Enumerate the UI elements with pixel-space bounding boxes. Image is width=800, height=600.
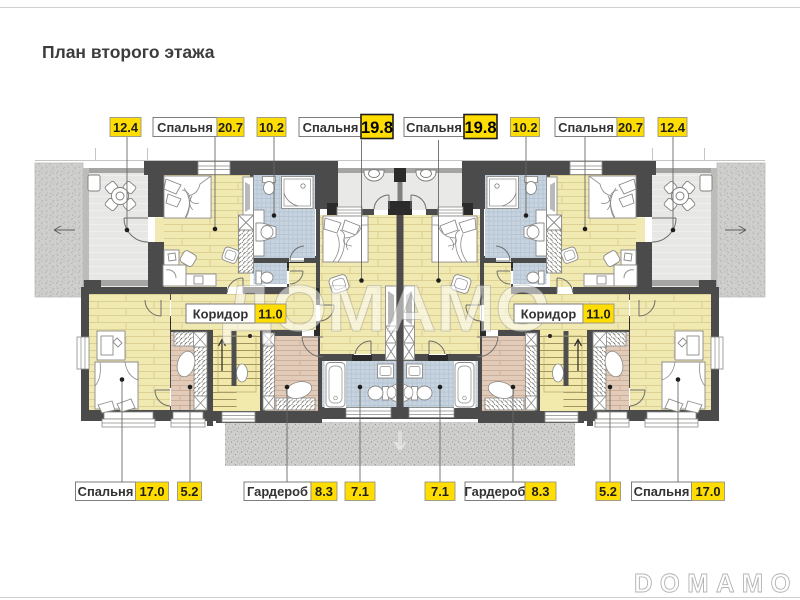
svg-text:8.3: 8.3 bbox=[532, 484, 550, 499]
svg-text:19.8: 19.8 bbox=[464, 119, 496, 137]
svg-text:17.0: 17.0 bbox=[695, 484, 720, 499]
svg-text:7.1: 7.1 bbox=[431, 484, 449, 499]
svg-text:20.7: 20.7 bbox=[618, 120, 643, 135]
svg-text:Спальня: Спальня bbox=[406, 120, 462, 135]
svg-text:12.4: 12.4 bbox=[113, 120, 139, 135]
svg-text:Гардероб: Гардероб bbox=[465, 484, 526, 499]
svg-text:Коридор: Коридор bbox=[521, 307, 577, 322]
svg-text:11.0: 11.0 bbox=[258, 307, 282, 322]
svg-text:17.0: 17.0 bbox=[139, 484, 164, 499]
svg-text:8.3: 8.3 bbox=[315, 484, 333, 499]
svg-text:10.2: 10.2 bbox=[512, 120, 537, 135]
svg-text:5.2: 5.2 bbox=[599, 484, 617, 499]
svg-text:7.1: 7.1 bbox=[351, 484, 369, 499]
svg-text:19.8: 19.8 bbox=[361, 119, 393, 137]
svg-text:5.2: 5.2 bbox=[181, 484, 199, 499]
svg-text:Спальня: Спальня bbox=[78, 484, 134, 499]
svg-text:Спальня: Спальня bbox=[634, 484, 690, 499]
svg-text:Спальня: Спальня bbox=[558, 120, 614, 135]
svg-text:DOMAMO: DOMAMO bbox=[634, 570, 798, 598]
svg-text:Коридор: Коридор bbox=[193, 307, 249, 322]
svg-text:10.2: 10.2 bbox=[259, 120, 284, 135]
svg-text:Гардероб: Гардероб bbox=[247, 484, 308, 499]
svg-text:Спальня: Спальня bbox=[157, 120, 213, 135]
svg-text:11.0: 11.0 bbox=[586, 307, 610, 322]
svg-text:План второго этажа: План второго этажа bbox=[42, 42, 215, 62]
svg-text:20.7: 20.7 bbox=[218, 120, 243, 135]
svg-text:Спальня: Спальня bbox=[303, 120, 359, 135]
svg-text:12.4: 12.4 bbox=[660, 120, 686, 135]
